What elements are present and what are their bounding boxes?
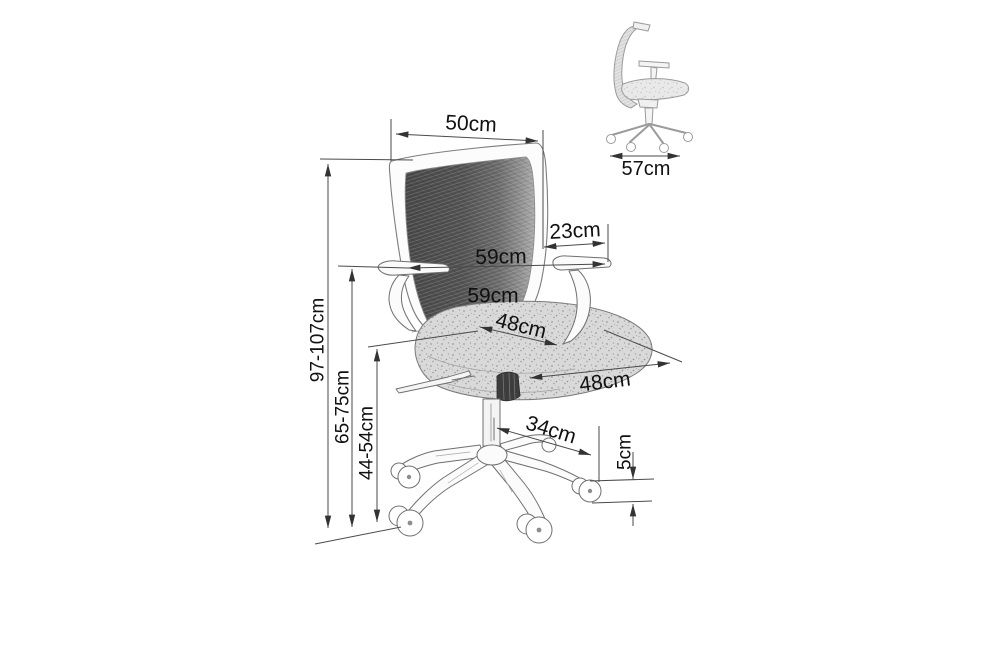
base-hub [477,445,507,465]
dimension-armrest-height: 65-75cm [333,269,354,527]
dimension-label-backrest-width: 50cm [445,111,497,137]
side-base-legs [612,124,686,143]
caster-right [572,478,601,502]
gas-lift-bellows [497,372,520,401]
diagram-canvas: 50cm 23cm 59cm 59cm 48cm 48cm [0,0,1000,667]
side-casters [607,133,693,153]
main-chair-drawing [378,143,652,543]
dimension-label-seat-height: 44-54cm [357,406,378,480]
chair-dimension-diagram: 50cm 23cm 59cm 59cm 48cm 48cm [0,0,1000,667]
dimension-label-overall-width: 59cm [467,285,518,308]
side-armrest-pad [639,61,669,68]
dimension-label-armrest-span: 59cm [475,245,527,269]
side-cylinder [645,108,653,124]
dimension-label-overall-height: 97-107cm [308,298,329,383]
dimension-label-caster-height: 5cm [615,434,636,470]
caster-front-center [517,514,552,543]
dimension-label-seat-depth: 48cm [578,367,632,396]
dimension-label-armrest-pad-depth: 23cm [549,218,601,244]
dimension-label-armrest-height: 65-75cm [333,370,354,444]
dimension-armrest-pad-depth: 23cm [544,218,608,262]
extension-line [592,501,652,503]
dimension-label-side-depth: 57cm [622,158,671,180]
ground-line [315,527,401,544]
side-seat [622,79,689,100]
side-view-chair [607,22,693,153]
side-mechanism [638,99,658,108]
armrest-right-pad [553,256,611,270]
dimension-overall-width: 59cm [467,285,518,308]
base-star [397,435,588,522]
dimension-side-depth: 57cm [610,156,680,180]
dimension-caster-height: 5cm [590,434,654,526]
gas-lift-cylinder [483,399,500,446]
extension-line [590,479,654,481]
